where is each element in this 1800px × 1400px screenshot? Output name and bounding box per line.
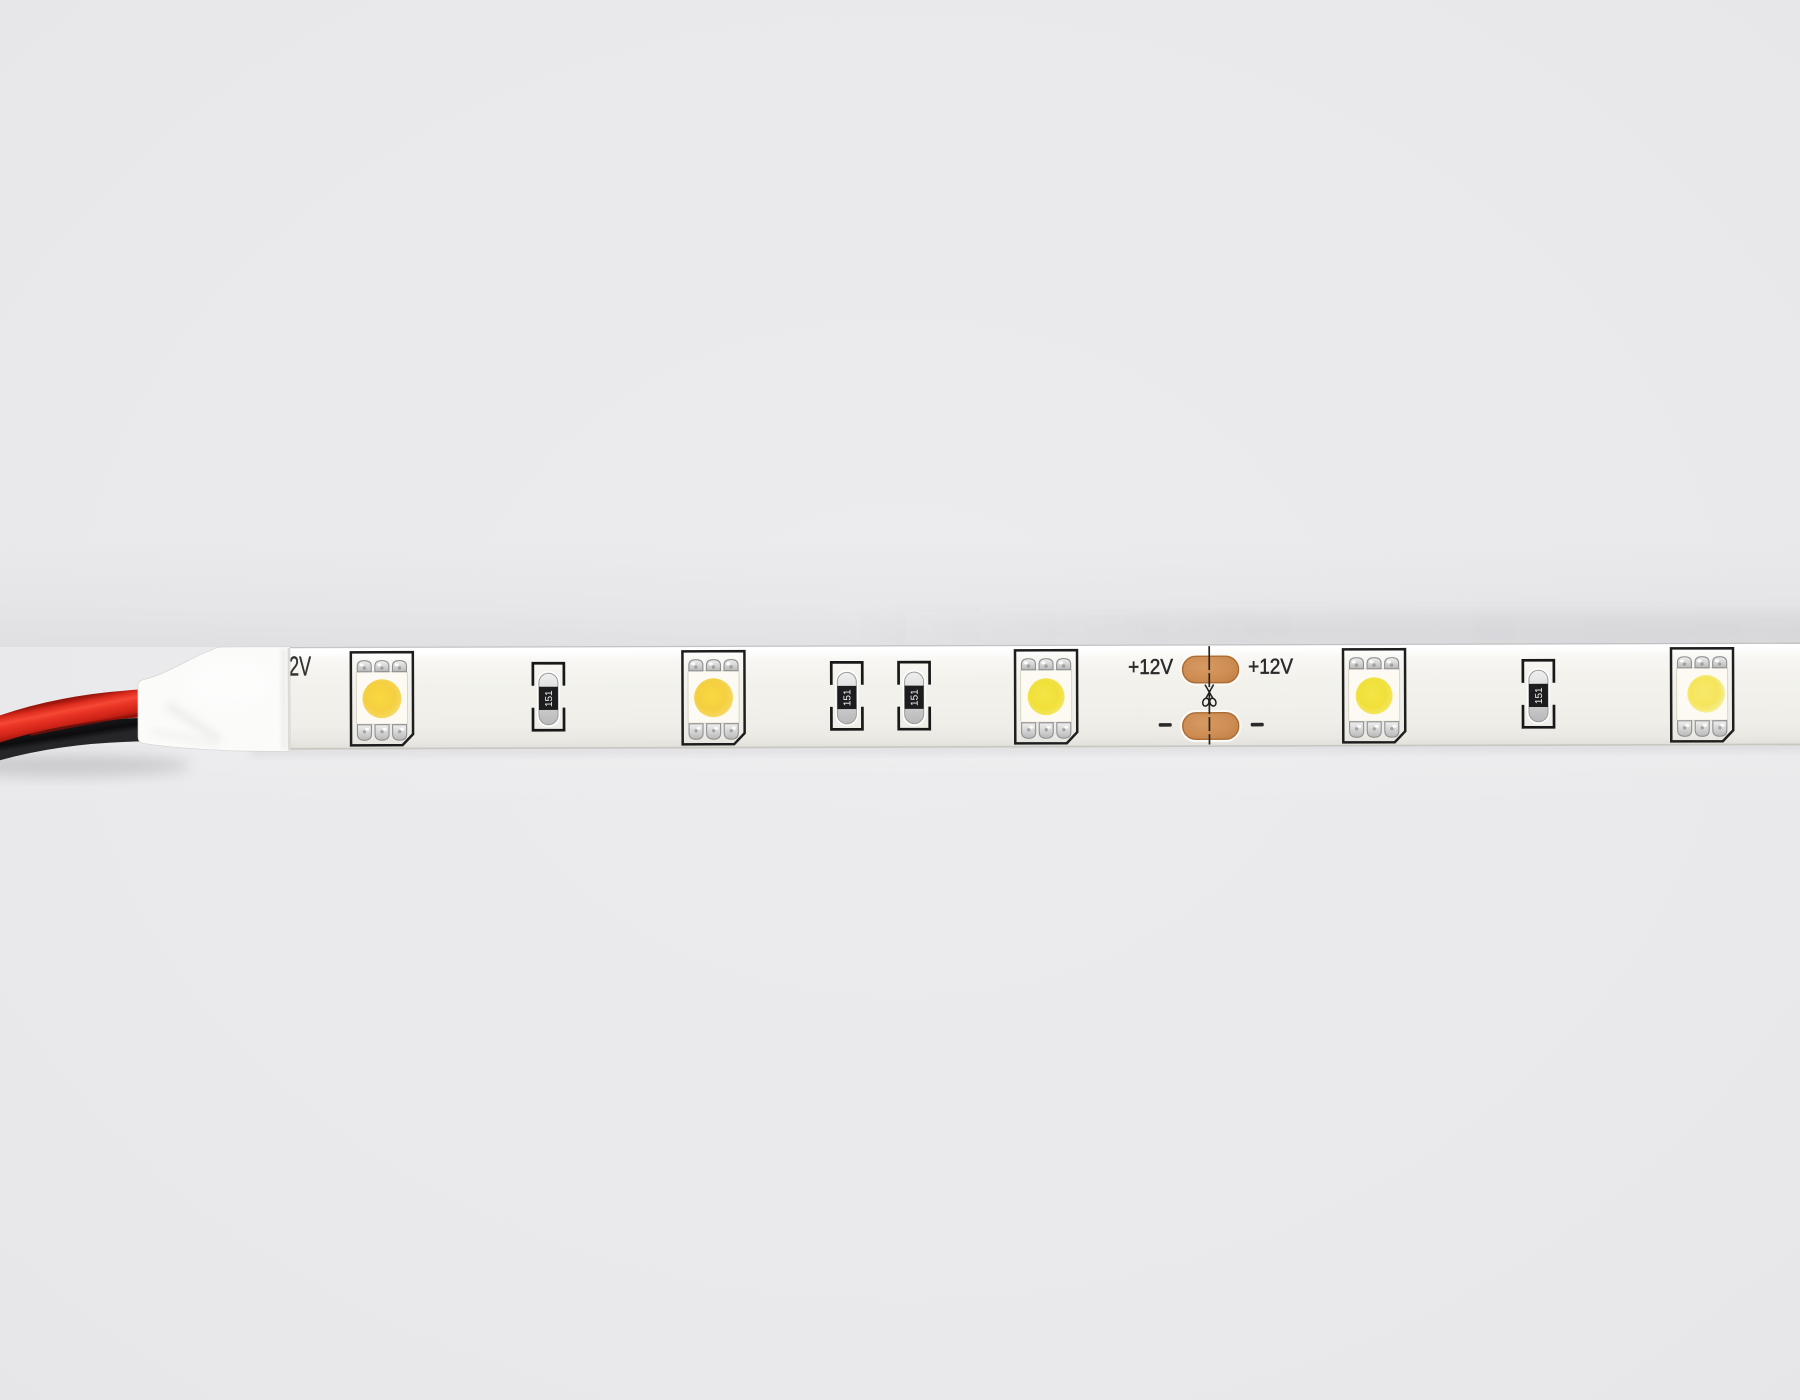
svg-text:2V: 2V [289,650,312,681]
svg-text:+12V: +12V [1248,655,1294,679]
svg-text:+12V: +12V [1128,655,1174,679]
